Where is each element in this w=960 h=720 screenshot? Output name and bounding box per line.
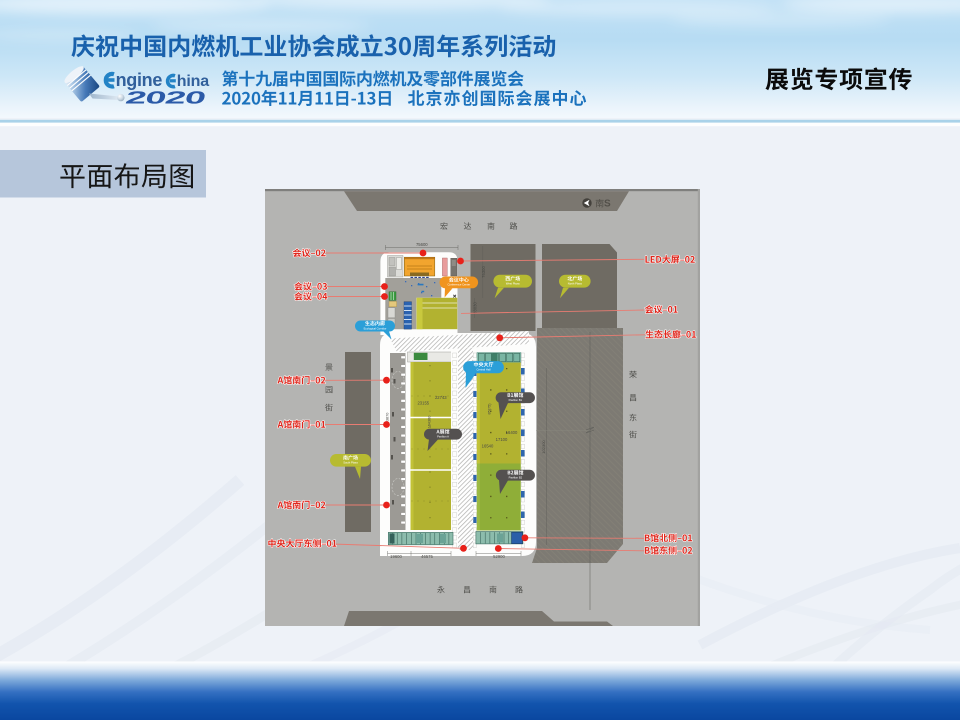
svg-text:Pavilion B2: Pavilion B2 <box>509 476 523 480</box>
svg-text:33030: 33030 <box>473 302 478 314</box>
svg-text:16540: 16540 <box>482 444 494 449</box>
svg-text:Pavilion B1: Pavilion B1 <box>509 398 523 402</box>
svg-text:South Plaza: South Plaza <box>343 461 358 465</box>
svg-text:2020: 2020 <box>124 88 208 108</box>
svg-text:52900: 52900 <box>493 554 505 559</box>
svg-text:Ecological Corridor: Ecological Corridor <box>364 326 387 330</box>
svg-text:19600: 19600 <box>390 554 402 559</box>
svg-text:46575: 46575 <box>421 554 433 559</box>
svg-text:Central Hall: Central Hall <box>476 368 490 372</box>
svg-text:West Plaza: West Plaza <box>506 282 520 286</box>
svg-text:85(75): 85(75) <box>487 403 491 415</box>
svg-text:102300: 102300 <box>541 440 546 454</box>
svg-text:76300: 76300 <box>481 266 486 278</box>
svg-text:17100: 17100 <box>496 437 508 442</box>
svg-text:Pavilion A: Pavilion A <box>437 435 449 439</box>
svg-text:16400: 16400 <box>506 430 518 435</box>
svg-text:Conference Center: Conference Center <box>447 283 470 287</box>
svg-text:S: S <box>604 199 611 210</box>
svg-text:23155: 23155 <box>417 401 429 406</box>
svg-text:North Plaza: North Plaza <box>568 282 583 286</box>
svg-text:164360: 164360 <box>428 416 432 429</box>
svg-text:22743: 22743 <box>435 395 447 400</box>
svg-text:75600: 75600 <box>416 242 428 247</box>
